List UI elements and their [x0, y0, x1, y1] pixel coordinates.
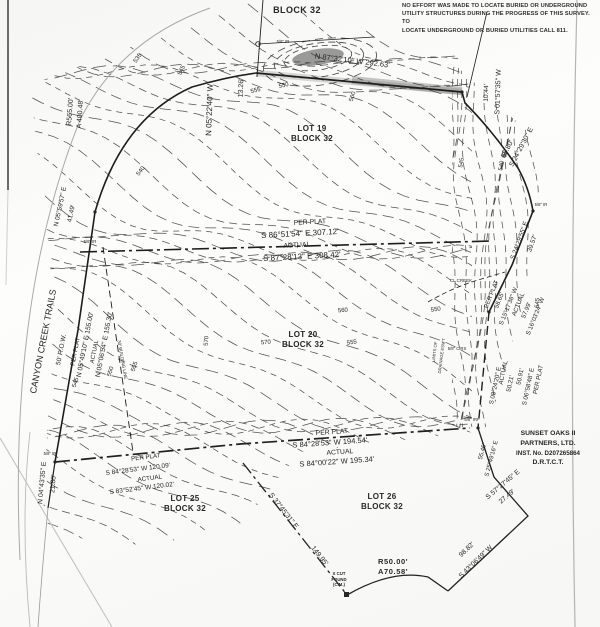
cul-de-sac-arc	[347, 575, 448, 595]
bearing-e-2: S 24°29'55" E	[509, 219, 530, 260]
contour-label: 555	[131, 360, 140, 372]
bearing-top: N 87°32'10" W 292.63'	[314, 51, 390, 69]
marker-ir-nw: 5/8" IR	[277, 39, 290, 44]
curve-radius-bottom: R50.00'	[378, 557, 408, 567]
xcut-line: (C.M.)	[324, 582, 354, 588]
lot25-block: BLOCK 32	[150, 504, 220, 514]
marker-ir-e: 5/8" IR	[535, 202, 548, 207]
bearing-nw-dist: 13.26'	[238, 78, 246, 97]
marker-cirs: 5/8" CIRS	[448, 346, 467, 351]
lot26-label: LOT 26 BLOCK 32	[347, 492, 417, 512]
north-tie-horizontal	[258, 37, 374, 44]
curve-data-label: R50.00' A70.58'	[378, 557, 408, 576]
contour-label: 540	[136, 165, 147, 177]
actual-mid: S 87°28'13" E 308.42'	[263, 250, 341, 263]
per-plat-mid-tag: PER PLAT	[294, 218, 327, 227]
actual-s: S 84°00'22" W 195.34'	[299, 454, 375, 468]
lot19-name: LOT 19	[277, 124, 347, 134]
owner-line: SUNSET OAKS II	[498, 429, 598, 439]
lot26-block: BLOCK 32	[347, 502, 417, 512]
bearing-sw-vertical: N 04°43'35" E	[36, 461, 48, 504]
actual-se-dist: 50.21'	[505, 375, 515, 393]
west-boundary-curve	[55, 73, 256, 462]
contour-label: 535	[133, 52, 144, 64]
bearing-s-diag2-dist: 98.82'	[458, 541, 476, 559]
owner-block: SUNSET OAKS II PARTNERS, LTD. INST. No. …	[498, 429, 598, 468]
curve-radius: R565.00'	[66, 98, 75, 126]
lot20-name: LOT 20	[268, 330, 338, 340]
contour-label: 545	[458, 157, 466, 169]
bearing-s-diag: S 37°45'31" E	[267, 491, 300, 530]
contour-label: 540	[498, 160, 506, 172]
per-plat-se-dist: 50.91'	[515, 368, 525, 386]
contour-label: 550	[430, 306, 441, 313]
contour-label: 550	[107, 365, 116, 377]
street-west-edge	[18, 8, 210, 560]
curve-arc-bottom: A70.58'	[378, 567, 408, 577]
owner-line: D.R.T.C.T.	[498, 458, 598, 468]
bearing-se-1-dist: 55.46'	[478, 443, 488, 460]
contour-lines-main	[15, 0, 561, 627]
contour-label: 545	[535, 297, 542, 308]
plat-labels: CANYON CREEK TRAILS50' R.O.W.PER PLATN 0…	[28, 39, 547, 580]
marker-ir-w: 5/8" IR	[84, 239, 97, 244]
owner-line: INST. No. D207265864	[498, 449, 598, 459]
bearing-sw-dist: 21.80'	[49, 474, 58, 493]
disclaimer-line: LOCATE UNDERGROUND OR BURIED UTILITIES C…	[402, 27, 598, 35]
limits-label-1: LIMITS OF	[431, 341, 439, 362]
per-plat-s-tag: PER PLAT	[316, 428, 349, 437]
survey-plat-scan: CANYON CREEK TRAILS50' R.O.W.PER PLATN 0…	[0, 0, 600, 627]
building-line-label: 30' BUILDING LINE	[117, 340, 129, 380]
bearing-w-upper-dist: 41.49'	[66, 204, 76, 223]
disclaimer-line: UTILITY STRUCTURES DURING THE PROGRESS O…	[402, 10, 598, 26]
contour-label: 550	[278, 82, 290, 90]
bearing-nw-vertical: N 05°22'40" W	[204, 83, 215, 136]
contour-label: 555	[346, 339, 357, 346]
contour-label: 545	[177, 64, 187, 76]
lot19-block: BLOCK 32	[277, 134, 347, 144]
east-boundary-dashed	[478, 312, 489, 428]
bearing-ne-dist: 10.44'	[483, 84, 491, 102]
contour-label: 570	[204, 335, 211, 346]
curve-arc: A 400.48'	[76, 99, 85, 128]
marker-irf-se: 5/8" IRF	[464, 417, 480, 422]
contour-label: 555	[250, 87, 262, 96]
bearing-s-diag-dist: 149.95'	[309, 545, 329, 567]
bearing-ne-vertical: S 01°57'35" W	[493, 69, 503, 115]
building-line	[103, 247, 133, 452]
actual-se: S 08°24'20" E	[488, 366, 503, 405]
owner-line: PARTNERS, LTD.	[498, 439, 598, 449]
lot20-label: LOT 20 BLOCK 32	[268, 330, 338, 350]
utility-disclaimer-note: NO EFFORT WAS MADE TO LOCATE BURIED OR U…	[402, 2, 598, 35]
creek-label: CL CREEK	[450, 278, 472, 283]
lot25-name: LOT 25	[150, 494, 220, 504]
lot20-block: BLOCK 32	[268, 340, 338, 350]
contour-label: 560	[338, 308, 349, 315]
plat-drawing: CANYON CREEK TRAILS50' R.O.W.PER PLATN 0…	[0, 0, 600, 627]
disclaimer-line: NO EFFORT WAS MADE TO LOCATE BURIED OR U…	[402, 2, 598, 10]
block-top-label: BLOCK 32	[252, 5, 342, 15]
limits-label-2: DRAINAGE ESM'T	[437, 337, 446, 373]
per-plat-mid: S 86°51'54" E 307.12'	[261, 227, 339, 240]
marker-ir-sw: 5/8" IR	[44, 451, 57, 456]
per-plat-s: S 84°28'53" W 194.54'	[292, 435, 368, 449]
x-cut-marker	[344, 592, 349, 597]
street-name: CANYON CREEK TRAILS	[28, 289, 58, 395]
lot25-label: LOT 25 BLOCK 32	[150, 494, 220, 514]
lot19-label: LOT 19 BLOCK 32	[277, 124, 347, 144]
actual-mid-tag: ACTUAL	[283, 241, 310, 249]
x-cut-found-label: X CUT FOUND (C.M.)	[324, 571, 354, 588]
lot26-name: LOT 26	[347, 492, 417, 502]
street-row: 50' R.O.W.	[55, 334, 68, 366]
